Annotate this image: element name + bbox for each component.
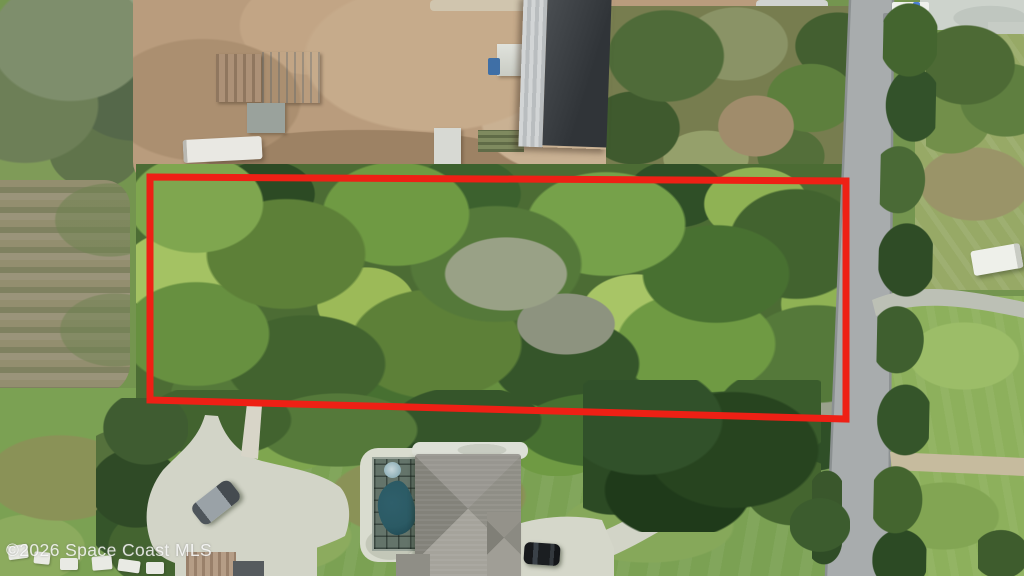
lot-boundary-outline — [150, 177, 846, 419]
aerial-photo: ©2026 Space Coast MLS — [0, 0, 1024, 576]
mls-watermark: ©2026 Space Coast MLS — [6, 540, 212, 561]
red-boundary-overlay — [0, 0, 1024, 576]
